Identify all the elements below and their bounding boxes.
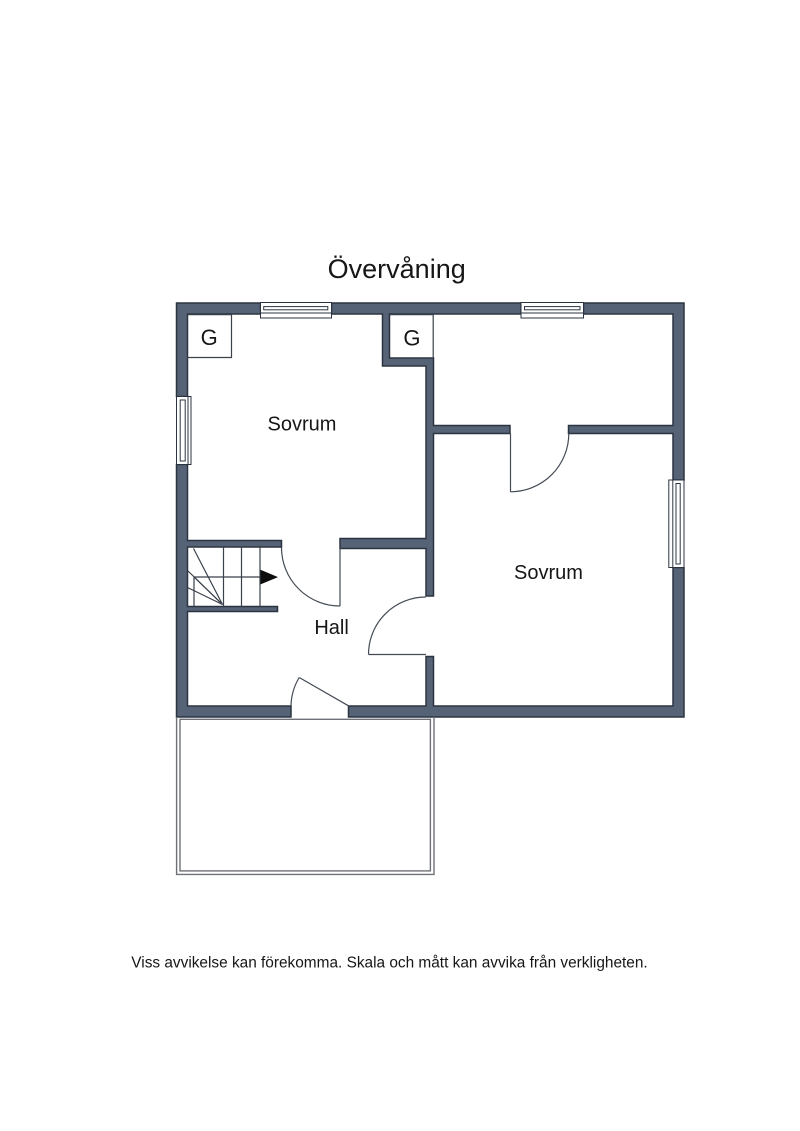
svg-text:Sovrum: Sovrum xyxy=(268,414,337,436)
svg-text:Övervåning: Övervåning xyxy=(328,254,466,284)
svg-text:G: G xyxy=(201,325,218,350)
svg-text:Sovrum: Sovrum xyxy=(514,562,583,584)
svg-text:Viss avvikelse kan förekomma.: Viss avvikelse kan förekomma. Skala och … xyxy=(131,955,647,972)
svg-text:G: G xyxy=(403,325,420,350)
svg-text:Hall: Hall xyxy=(314,617,348,639)
